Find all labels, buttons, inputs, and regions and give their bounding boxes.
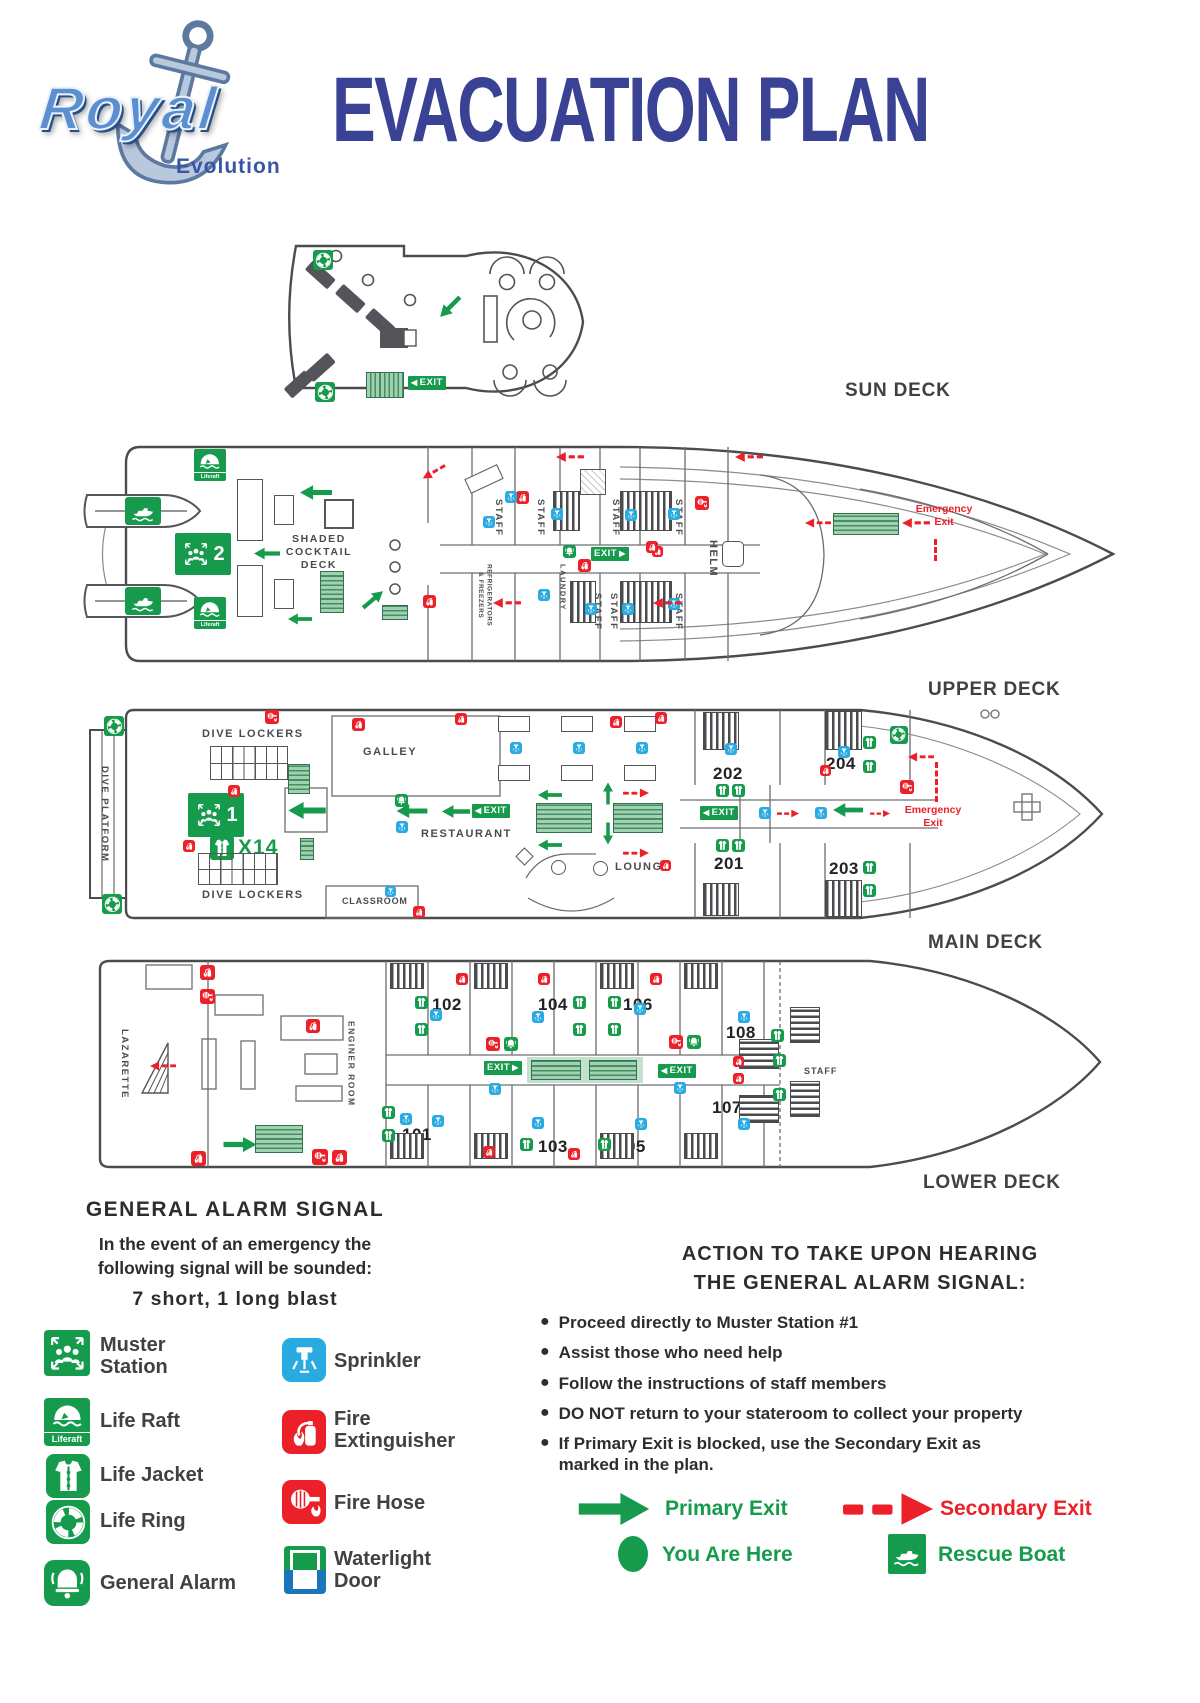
action-item: ●If Primary Exit is blocked, use the Sec… bbox=[540, 1433, 1150, 1476]
bed bbox=[474, 963, 508, 989]
secondary-exit-arrow bbox=[805, 518, 831, 528]
sprinkler-icon bbox=[674, 1082, 686, 1094]
fire-extinguisher-icon bbox=[306, 1019, 320, 1033]
life-jacket-icon bbox=[415, 996, 428, 1009]
fire-extinguisher-icon bbox=[455, 713, 467, 725]
emergency-exit-hatch bbox=[833, 513, 899, 535]
planter bbox=[274, 579, 294, 609]
life-raft-icon: Liferaft bbox=[44, 1398, 90, 1446]
bed bbox=[600, 963, 634, 989]
life-ring-icon bbox=[890, 726, 908, 744]
primary-exit-arrow bbox=[538, 839, 562, 851]
sprinkler-icon bbox=[532, 1011, 544, 1023]
sprinkler-icon bbox=[838, 746, 850, 758]
fire-extinguisher-icon bbox=[332, 1150, 347, 1165]
secondary-exit-arrow bbox=[908, 752, 934, 762]
life-jacket-icon bbox=[863, 861, 876, 874]
sprinkler-icon bbox=[759, 807, 771, 819]
emergency-exit-label: Emergency Exit bbox=[906, 503, 982, 528]
primary-exit-arrow bbox=[286, 802, 328, 819]
primary-exit-arrow bbox=[833, 803, 863, 817]
rescue-boat bbox=[83, 485, 205, 537]
fire-extinguisher-icon bbox=[733, 1056, 744, 1067]
room-label-classroom: CLASSROOM bbox=[342, 896, 408, 907]
life-ring-icon bbox=[46, 1500, 90, 1544]
fire-hose-icon bbox=[669, 1035, 683, 1049]
bed bbox=[684, 1133, 718, 1159]
sprinkler-icon bbox=[634, 1003, 646, 1015]
rescue-boat bbox=[83, 575, 205, 627]
fire-extinguisher-icon bbox=[610, 716, 622, 728]
action-item: ●DO NOT return to your stateroom to coll… bbox=[540, 1403, 1150, 1424]
sprinkler-icon bbox=[585, 603, 597, 615]
dive-locker-grid bbox=[198, 853, 278, 885]
fire-extinguisher-icon bbox=[646, 541, 658, 553]
helm-chair bbox=[722, 541, 744, 567]
primary-exit-arrow bbox=[538, 789, 562, 801]
rescue-boat-icon bbox=[125, 587, 161, 615]
room-label-lazarette: LAZARETTE bbox=[118, 1025, 130, 1103]
bed bbox=[825, 880, 862, 917]
fire-extinguisher-icon bbox=[456, 973, 468, 985]
couch bbox=[237, 565, 263, 617]
secondary-exit-arrow bbox=[623, 848, 649, 858]
exit-sign: ◀EXIT bbox=[700, 806, 738, 820]
fire-extinguisher-icon bbox=[423, 595, 436, 608]
fire-hose-icon bbox=[900, 780, 914, 794]
room-label-galley: GALLEY bbox=[363, 746, 417, 760]
general-alarm-icon bbox=[44, 1560, 90, 1606]
life-jacket-icon bbox=[598, 1138, 611, 1151]
life-jacket-icon bbox=[573, 1023, 586, 1036]
sprinkler-icon bbox=[636, 742, 648, 754]
sprinkler-icon bbox=[532, 1117, 544, 1129]
primary-exit-arrow bbox=[573, 1493, 655, 1525]
stairs bbox=[589, 1060, 637, 1080]
actions-title: ACTION TO TAKE UPON HEARING THE GENERAL … bbox=[600, 1240, 1120, 1298]
secondary-exit-arrow bbox=[653, 598, 681, 608]
room-label-staff: STAFF bbox=[607, 589, 619, 635]
secondary-exit-arrow bbox=[493, 598, 521, 608]
life-jacket-icon bbox=[773, 1088, 786, 1101]
fire-extinguisher-icon bbox=[650, 973, 662, 985]
waterlight-door-icon bbox=[284, 1546, 326, 1594]
room-label-staff: STAFF bbox=[672, 589, 684, 635]
fire-hose-icon bbox=[265, 710, 279, 724]
secondary-exit-arrow bbox=[623, 788, 649, 798]
life-jacket-icon bbox=[573, 996, 586, 1009]
room-label-staff: STAFF bbox=[534, 495, 546, 541]
alarm-signal-title: GENERAL ALARM SIGNAL bbox=[60, 1198, 410, 1222]
secondary-exit-arrow bbox=[735, 452, 763, 462]
legend-label: Life Jacket bbox=[100, 1464, 203, 1486]
exit-sign: EXIT▶ bbox=[484, 1061, 522, 1075]
fire-hose-icon bbox=[695, 496, 709, 510]
table bbox=[324, 499, 354, 529]
cabin-number-202: 202 bbox=[713, 764, 743, 784]
fire-extinguisher-icon bbox=[820, 765, 831, 776]
sprinkler-icon bbox=[815, 807, 827, 819]
lower-deck-plan: LAZARETTE ENGINER ROOM EXIT▶ ◀EXIT 102 1… bbox=[90, 955, 1110, 1177]
secondary-exit-path bbox=[935, 762, 938, 802]
cabin-number-201: 201 bbox=[714, 854, 744, 874]
you-are-here-icon bbox=[618, 1536, 648, 1572]
fire-extinguisher-icon bbox=[516, 491, 529, 504]
general-alarm-icon bbox=[504, 1037, 518, 1051]
stairs bbox=[300, 838, 314, 860]
room-label-engine-room: ENGINER ROOM bbox=[346, 1021, 357, 1107]
life-jacket-icon bbox=[608, 996, 621, 1009]
general-alarm-icon bbox=[563, 545, 576, 558]
alarm-signal-body: In the event of an emergency the followi… bbox=[50, 1233, 420, 1280]
dive-locker-grid bbox=[210, 746, 288, 780]
room-label-shaded-cocktail-deck: SHADED COCKTAIL DECK bbox=[282, 533, 356, 572]
stairs bbox=[613, 803, 663, 833]
bed bbox=[390, 1133, 424, 1159]
life-jacket-icon bbox=[382, 1106, 395, 1119]
action-item: ●Proceed directly to Muster Station #1 bbox=[540, 1312, 1150, 1333]
life-raft-icon: Liferaft bbox=[194, 597, 226, 629]
primary-exit-arrow bbox=[254, 547, 280, 560]
sprinkler-icon bbox=[483, 516, 495, 528]
you-are-here-label: You Are Here bbox=[662, 1543, 793, 1567]
dining-table bbox=[490, 755, 538, 791]
fire-extinguisher-icon bbox=[733, 1073, 744, 1084]
fire-extinguisher-icon bbox=[352, 718, 365, 731]
muster-station-1: 1 bbox=[188, 793, 244, 837]
sprinkler-icon bbox=[430, 1009, 442, 1021]
muster-station-2: 2 bbox=[175, 533, 231, 575]
life-jacket-icon bbox=[716, 839, 729, 852]
dining-table bbox=[553, 755, 601, 791]
exit-sign: ◀EXIT bbox=[472, 804, 510, 818]
dining-table bbox=[553, 706, 601, 742]
primary-exit-arrow bbox=[603, 783, 614, 805]
muster-station-icon bbox=[44, 1330, 90, 1376]
room-label-dive-lockers: DIVE LOCKERS bbox=[202, 889, 304, 903]
fire-extinguisher-icon bbox=[191, 1151, 206, 1166]
legend-label: Waterlight Door bbox=[334, 1548, 431, 1593]
sprinkler-icon bbox=[725, 743, 737, 755]
sprinkler-icon bbox=[282, 1338, 326, 1382]
planter bbox=[274, 495, 294, 525]
life-jacket-icon bbox=[608, 1023, 621, 1036]
page-title: EVACUATION PLAN bbox=[332, 58, 929, 163]
stairs bbox=[320, 571, 344, 613]
legend-label: General Alarm bbox=[100, 1572, 236, 1594]
secondary-exit-arrow bbox=[556, 452, 584, 462]
secondary-exit-path bbox=[934, 539, 937, 561]
primary-exit-arrow bbox=[223, 1137, 257, 1152]
fire-extinguisher-icon bbox=[200, 965, 215, 980]
sprinkler-icon bbox=[432, 1115, 444, 1127]
life-jacket-icon bbox=[716, 784, 729, 797]
sprinkler-icon bbox=[510, 742, 522, 754]
sprinkler-icon bbox=[538, 589, 550, 601]
fire-extinguisher-icon bbox=[538, 973, 550, 985]
secondary-exit-arrow bbox=[870, 809, 890, 818]
room-label-restaurant: RESTAURANT bbox=[421, 828, 512, 842]
main-deck-plan: DIVE PLATFORM DIVE LOCKERS 1 X14 DIVE LO… bbox=[80, 700, 1110, 935]
life-raft-icon: Liferaft bbox=[194, 449, 226, 481]
secondary-exit-arrow bbox=[843, 1492, 933, 1526]
fire-hose-icon bbox=[312, 1149, 328, 1165]
life-jacket-icon bbox=[382, 1129, 395, 1142]
bed bbox=[570, 581, 596, 623]
bed bbox=[703, 883, 739, 916]
room-label-staff: STAFF bbox=[804, 1066, 837, 1077]
deck-label-upper: UPPER DECK bbox=[928, 679, 1061, 701]
room-label-refrigerators: REFRIGERATORS & FREEZERS bbox=[476, 555, 492, 635]
legend-label: Life Ring bbox=[100, 1510, 186, 1532]
stairs bbox=[366, 372, 404, 398]
lounge-chair bbox=[551, 860, 566, 875]
legend-label: Life Raft bbox=[100, 1410, 180, 1432]
stairs bbox=[255, 1125, 303, 1153]
sun-deck-plan: ◀EXIT bbox=[280, 238, 592, 406]
sprinkler-icon bbox=[505, 491, 517, 503]
exit-sign: ◀EXIT bbox=[408, 376, 446, 390]
sprinkler-icon bbox=[738, 1011, 750, 1023]
actions-list: ●Proceed directly to Muster Station #1 ●… bbox=[540, 1312, 1150, 1485]
life-jacket-icon bbox=[863, 884, 876, 897]
secondary-exit-arrow bbox=[777, 809, 799, 818]
sprinkler-icon bbox=[400, 1113, 412, 1125]
life-jacket-icon bbox=[415, 1023, 428, 1036]
room-label-laundry: LAUNDRY bbox=[558, 559, 567, 615]
rescue-boat-label: Rescue Boat bbox=[938, 1543, 1065, 1567]
primary-exit-arrow bbox=[396, 804, 428, 818]
fire-extinguisher-icon bbox=[282, 1410, 326, 1454]
life-jacket-icon bbox=[863, 760, 876, 773]
life-jacket-icon bbox=[46, 1454, 90, 1498]
general-alarm-icon bbox=[687, 1035, 701, 1049]
couch bbox=[237, 479, 263, 541]
room-label-dive-platform: DIVE PLATFORM bbox=[98, 764, 110, 864]
bed bbox=[825, 711, 862, 750]
fire-extinguisher-icon bbox=[578, 559, 591, 572]
legend-label: Muster Station bbox=[100, 1334, 168, 1379]
legend-label: Fire Hose bbox=[334, 1492, 425, 1514]
sprinkler-icon bbox=[385, 886, 396, 897]
life-ring-icon bbox=[313, 250, 333, 270]
deck-label-sun: SUN DECK bbox=[845, 380, 951, 402]
bed bbox=[684, 963, 718, 989]
life-ring-icon bbox=[104, 716, 124, 736]
deck-label-lower: LOWER DECK bbox=[923, 1172, 1061, 1194]
room-label-dive-lockers: DIVE LOCKERS bbox=[202, 728, 304, 742]
fire-hose-icon bbox=[486, 1037, 500, 1051]
stairs bbox=[288, 764, 310, 794]
logo-subtitle: Evolution bbox=[176, 155, 281, 179]
primary-exit-arrow bbox=[603, 823, 614, 845]
primary-exit-arrow bbox=[442, 805, 470, 818]
life-jacket-icon bbox=[520, 1138, 533, 1151]
life-jacket-icon bbox=[771, 1029, 784, 1042]
fire-hose-icon bbox=[200, 989, 215, 1004]
sprinkler-icon bbox=[551, 508, 563, 520]
secondary-exit-arrow bbox=[150, 1061, 176, 1071]
stairs bbox=[536, 803, 592, 833]
life-jacket-icon bbox=[773, 1054, 786, 1067]
life-jacket-icon bbox=[732, 839, 745, 852]
sprinkler-icon bbox=[635, 1118, 647, 1130]
primary-exit-label: Primary Exit bbox=[665, 1497, 788, 1521]
fire-extinguisher-icon bbox=[413, 906, 425, 918]
evacuation-plan-poster: Royal Evolution EVACUATION PLAN ◀EXIT SU… bbox=[0, 0, 1200, 1703]
fire-extinguisher-icon bbox=[228, 785, 240, 797]
shower bbox=[580, 469, 606, 495]
cabin-number-203: 203 bbox=[829, 859, 859, 879]
rescue-boat-icon bbox=[125, 497, 161, 525]
sprinkler-icon bbox=[625, 509, 637, 521]
legend-label: Sprinkler bbox=[334, 1350, 421, 1372]
bed bbox=[390, 963, 424, 989]
lounge-chair bbox=[593, 861, 608, 876]
fire-extinguisher-icon bbox=[568, 1148, 580, 1160]
room-label-helm: HELM bbox=[705, 535, 719, 583]
dining-table bbox=[616, 755, 664, 791]
brand-logo: Royal Evolution bbox=[38, 12, 308, 212]
alarm-signal-blast: 7 short, 1 long blast bbox=[50, 1288, 420, 1311]
stairs bbox=[382, 605, 408, 620]
life-jacket-icon bbox=[732, 784, 745, 797]
cabin-number-107: 107 bbox=[712, 1098, 742, 1118]
deck-label-main: MAIN DECK bbox=[928, 932, 1043, 954]
dining-table bbox=[490, 706, 538, 742]
primary-exit-arrow bbox=[300, 485, 332, 500]
fire-extinguisher-icon bbox=[655, 712, 667, 724]
life-jacket-icon bbox=[863, 736, 876, 749]
rescue-boat-icon bbox=[888, 1534, 926, 1574]
bed bbox=[790, 1081, 820, 1117]
stairs bbox=[531, 1060, 581, 1080]
life-ring-icon bbox=[315, 382, 335, 402]
cabin-number-103: 103 bbox=[538, 1137, 568, 1157]
sprinkler-icon bbox=[738, 1118, 750, 1130]
primary-exit-arrow bbox=[288, 613, 312, 625]
exit-sign: EXIT▶ bbox=[591, 547, 629, 561]
sprinkler-icon bbox=[396, 821, 408, 833]
legend-label: Fire Extinguisher bbox=[334, 1408, 455, 1453]
life-ring-icon bbox=[102, 894, 122, 914]
fire-hose-icon bbox=[282, 1480, 326, 1524]
action-item: ●Assist those who need help bbox=[540, 1342, 1150, 1363]
fire-extinguisher-icon bbox=[483, 1146, 495, 1158]
upper-deck-plan: Liferaft Liferaft 2 SHADED COCKTAIL DECK… bbox=[60, 405, 1120, 667]
fire-extinguisher-icon bbox=[183, 840, 195, 852]
sprinkler-icon bbox=[489, 1083, 501, 1095]
secondary-exit-label: Secondary Exit bbox=[940, 1497, 1092, 1521]
sprinkler-icon bbox=[573, 742, 585, 754]
fire-extinguisher-icon bbox=[660, 860, 671, 871]
emergency-exit-label: Emergency Exit bbox=[898, 804, 968, 829]
sprinkler-icon bbox=[668, 508, 680, 520]
action-item: ●Follow the instructions of staff member… bbox=[540, 1373, 1150, 1394]
bed bbox=[790, 1007, 820, 1043]
exit-sign: ◀EXIT bbox=[658, 1064, 696, 1078]
sprinkler-icon bbox=[622, 603, 634, 615]
logo-title: Royal bbox=[36, 74, 222, 143]
